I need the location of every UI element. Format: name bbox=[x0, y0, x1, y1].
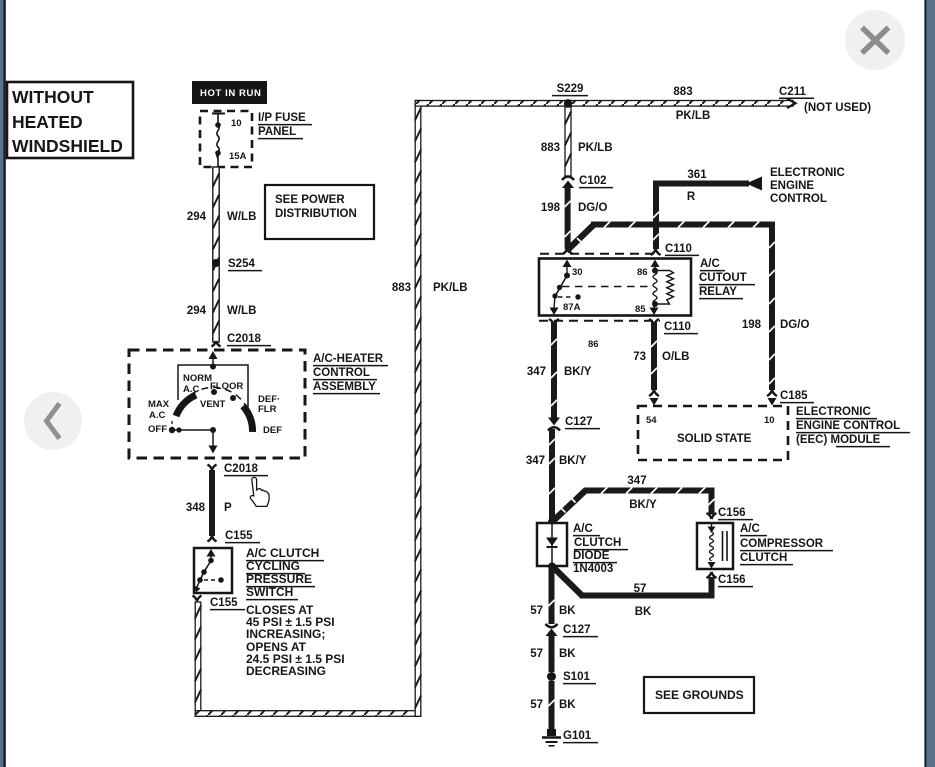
svg-text:348: 348 bbox=[186, 502, 206, 514]
svg-text:57: 57 bbox=[530, 605, 543, 617]
svg-text:SWITCH: SWITCH bbox=[246, 585, 293, 599]
svg-text:O/LB: O/LB bbox=[662, 351, 689, 363]
svg-text:DEF: DEF bbox=[263, 425, 282, 436]
svg-text:NORM: NORM bbox=[183, 373, 212, 384]
svg-text:347: 347 bbox=[527, 366, 546, 378]
svg-text:FLR: FLR bbox=[258, 404, 277, 415]
svg-text:S229: S229 bbox=[557, 83, 584, 95]
svg-text:COMPRESSOR: COMPRESSOR bbox=[740, 538, 824, 550]
svg-text:10: 10 bbox=[764, 415, 775, 426]
svg-text:C156: C156 bbox=[718, 574, 746, 586]
svg-text:C127: C127 bbox=[565, 416, 593, 428]
svg-text:A/C CLUTCH: A/C CLUTCH bbox=[246, 546, 319, 560]
svg-text:BK/Y: BK/Y bbox=[564, 366, 592, 378]
svg-text:SOLID STATE: SOLID STATE bbox=[677, 433, 752, 445]
svg-text:C110: C110 bbox=[665, 243, 692, 255]
svg-text:INCREASING;: INCREASING; bbox=[246, 627, 325, 641]
svg-text:PANEL: PANEL bbox=[258, 126, 296, 138]
svg-text:DISTRIBUTION: DISTRIBUTION bbox=[275, 208, 357, 220]
svg-text:PK/LB: PK/LB bbox=[578, 142, 613, 154]
svg-text:S254: S254 bbox=[228, 258, 255, 270]
svg-text:361: 361 bbox=[687, 169, 707, 181]
svg-text:ELECTRONIC: ELECTRONIC bbox=[770, 167, 845, 179]
svg-text:73: 73 bbox=[633, 351, 646, 363]
svg-text:C2018: C2018 bbox=[224, 463, 258, 475]
svg-text:BK: BK bbox=[559, 605, 576, 617]
svg-text:R: R bbox=[687, 191, 696, 203]
svg-text:PRESSURE: PRESSURE bbox=[246, 572, 312, 586]
svg-text:ENGINE: ENGINE bbox=[770, 180, 814, 192]
svg-text:CONTROL: CONTROL bbox=[313, 367, 370, 379]
svg-text:W/LB: W/LB bbox=[227, 211, 256, 223]
svg-text:198: 198 bbox=[541, 202, 561, 214]
svg-text:ELECTRONIC: ELECTRONIC bbox=[796, 406, 871, 418]
svg-text:(NOT USED): (NOT USED) bbox=[804, 102, 871, 114]
svg-text:85: 85 bbox=[635, 304, 646, 315]
svg-text:57: 57 bbox=[530, 699, 543, 711]
svg-text:BK/Y: BK/Y bbox=[629, 499, 657, 511]
svg-text:883: 883 bbox=[541, 142, 560, 154]
svg-text:VENT: VENT bbox=[200, 399, 226, 410]
svg-text:SEE GROUNDS: SEE GROUNDS bbox=[655, 688, 744, 702]
svg-text:CLUTCH: CLUTCH bbox=[740, 552, 787, 564]
svg-text:HOT IN RUN: HOT IN RUN bbox=[200, 88, 261, 99]
svg-text:C110: C110 bbox=[664, 321, 691, 333]
svg-text:C155: C155 bbox=[210, 597, 238, 609]
svg-text:86: 86 bbox=[588, 339, 599, 350]
svg-text:BK/Y: BK/Y bbox=[559, 455, 587, 467]
svg-text:DIODE: DIODE bbox=[573, 550, 610, 562]
svg-text:BK: BK bbox=[559, 699, 576, 711]
svg-text:S101: S101 bbox=[563, 671, 590, 683]
svg-text:15A: 15A bbox=[229, 151, 247, 162]
svg-text:(EEC) MODULE: (EEC) MODULE bbox=[796, 434, 881, 446]
svg-text:A/C: A/C bbox=[740, 523, 760, 535]
svg-text:WITHOUT: WITHOUT bbox=[12, 87, 94, 107]
svg-text:HEATED: HEATED bbox=[12, 112, 83, 132]
svg-text:A.C: A.C bbox=[183, 384, 200, 395]
svg-text:CUTOUT: CUTOUT bbox=[699, 272, 747, 284]
svg-text:PK/LB: PK/LB bbox=[433, 282, 468, 294]
svg-text:198: 198 bbox=[742, 319, 762, 331]
svg-text:883: 883 bbox=[392, 282, 411, 294]
svg-text:RELAY: RELAY bbox=[699, 286, 737, 298]
svg-text:C102: C102 bbox=[579, 175, 607, 187]
svg-text:294: 294 bbox=[187, 211, 207, 223]
svg-text:W/LB: W/LB bbox=[227, 305, 256, 317]
svg-text:57: 57 bbox=[634, 583, 647, 595]
svg-text:PK/LB: PK/LB bbox=[676, 110, 711, 122]
svg-text:CYCLING: CYCLING bbox=[246, 559, 300, 573]
svg-text:G101: G101 bbox=[563, 730, 592, 742]
svg-text:C155: C155 bbox=[225, 530, 253, 542]
svg-text:10: 10 bbox=[231, 118, 242, 129]
svg-text:A/C: A/C bbox=[700, 258, 720, 270]
svg-text:CONTROL: CONTROL bbox=[770, 193, 827, 205]
svg-text:ENGINE CONTROL: ENGINE CONTROL bbox=[796, 420, 900, 432]
svg-text:C185: C185 bbox=[780, 390, 808, 402]
svg-text:294: 294 bbox=[187, 305, 207, 317]
svg-text:BK: BK bbox=[559, 648, 576, 660]
svg-text:BK: BK bbox=[635, 606, 652, 618]
svg-text:86: 86 bbox=[637, 267, 648, 278]
svg-text:FLOOR: FLOOR bbox=[210, 381, 243, 392]
svg-text:C2018: C2018 bbox=[227, 333, 261, 345]
svg-text:347: 347 bbox=[627, 475, 646, 487]
svg-text:C127: C127 bbox=[563, 624, 591, 636]
svg-text:30: 30 bbox=[572, 267, 583, 278]
svg-text:ASSEMBLY: ASSEMBLY bbox=[313, 381, 376, 393]
svg-text:CLUTCH: CLUTCH bbox=[574, 537, 621, 549]
svg-text:WINDSHIELD: WINDSHIELD bbox=[12, 136, 123, 156]
svg-text:87A: 87A bbox=[563, 302, 581, 313]
svg-text:54: 54 bbox=[646, 415, 657, 426]
svg-text:MAX: MAX bbox=[148, 399, 170, 410]
svg-text:1N4003: 1N4003 bbox=[573, 563, 613, 575]
svg-text:C156: C156 bbox=[718, 507, 746, 519]
svg-text:A/C-HEATER: A/C-HEATER bbox=[313, 353, 384, 365]
svg-text:SEE POWER: SEE POWER bbox=[275, 194, 345, 206]
svg-text:P: P bbox=[224, 502, 232, 514]
svg-text:C211: C211 bbox=[779, 86, 806, 98]
svg-text:DG/O: DG/O bbox=[578, 202, 607, 214]
svg-text:OFF: OFF bbox=[148, 424, 167, 435]
svg-text:A.C: A.C bbox=[149, 410, 166, 421]
svg-text:57: 57 bbox=[530, 648, 543, 660]
svg-text:DG/O: DG/O bbox=[780, 319, 809, 331]
svg-text:I/P FUSE: I/P FUSE bbox=[258, 112, 306, 124]
svg-text:347: 347 bbox=[526, 455, 545, 467]
svg-text:A/C: A/C bbox=[573, 523, 593, 535]
svg-text:883: 883 bbox=[673, 86, 692, 98]
svg-text:DECREASING: DECREASING bbox=[246, 664, 326, 678]
